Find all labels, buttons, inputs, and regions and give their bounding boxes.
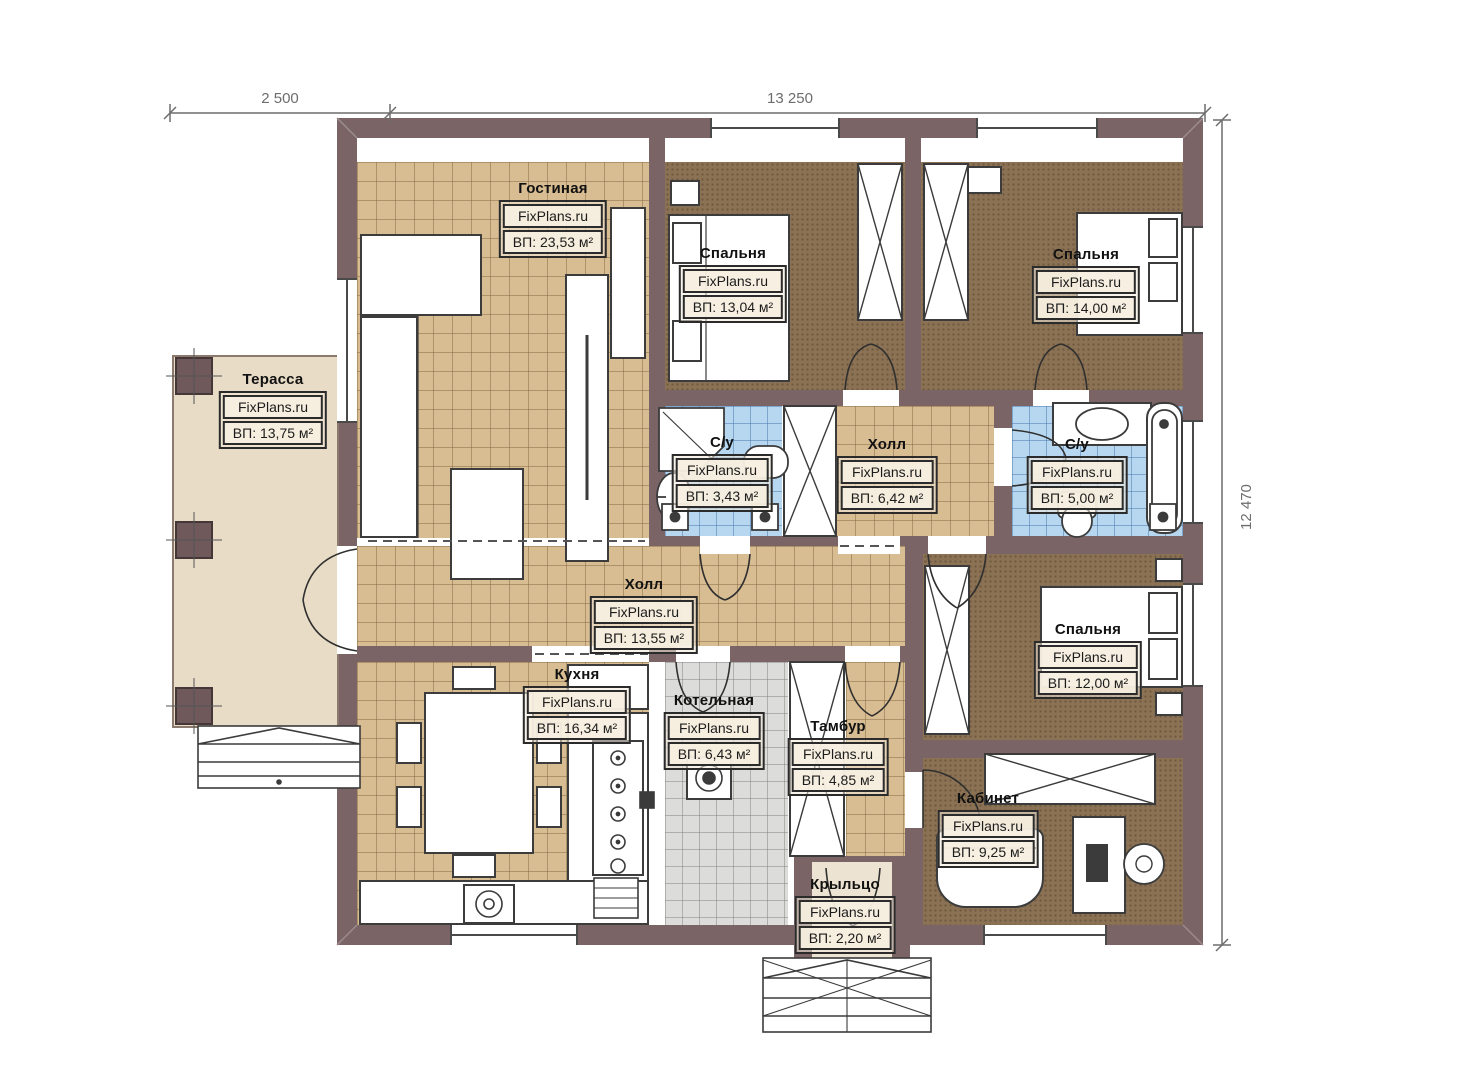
bathtub <box>1146 402 1183 534</box>
sofa <box>360 234 482 316</box>
room-area: ВП: 23,53 м² <box>503 230 603 254</box>
room-porch-label: Крыльцо FixPlans.ru ВП: 2,20 м² <box>795 876 896 954</box>
door-opening <box>905 772 923 828</box>
window <box>976 118 1098 138</box>
wall <box>357 646 532 662</box>
room-name: Кухня <box>555 666 600 684</box>
window <box>710 118 840 138</box>
stove <box>592 740 644 876</box>
room-bedroom1-label: Спальня FixPlans.ru ВП: 13,04 м² <box>679 245 787 323</box>
room-name: Спальня <box>1053 246 1119 264</box>
room-area: ВП: 14,00 м² <box>1036 296 1136 320</box>
watermark: FixPlans.ru <box>223 395 323 419</box>
watermark: FixPlans.ru <box>1038 645 1138 669</box>
room-name: С/у <box>1065 436 1089 454</box>
room-vestibule-label: Тамбур FixPlans.ru ВП: 4,85 м² <box>788 718 889 796</box>
watermark: FixPlans.ru <box>683 269 783 293</box>
watermark: FixPlans.ru <box>942 814 1035 838</box>
dresser <box>938 166 1002 194</box>
shelf <box>610 207 646 359</box>
room-boiler-label: Котельная FixPlans.ru ВП: 6,43 м² <box>664 692 765 770</box>
pillow <box>1148 262 1178 302</box>
room-office-label: Кабинет FixPlans.ru ВП: 9,25 м² <box>938 790 1039 868</box>
room-area: ВП: 13,04 м² <box>683 295 783 319</box>
room-name: Кабинет <box>957 790 1019 808</box>
room-hall-main-label: Холл FixPlans.ru ВП: 13,55 м² <box>590 576 698 654</box>
room-name: Котельная <box>674 692 754 710</box>
porch-steps <box>763 958 931 1032</box>
window <box>983 925 1107 945</box>
watermark: FixPlans.ru <box>1031 460 1124 484</box>
room-area: ВП: 5,00 м² <box>1031 486 1124 510</box>
room-name: Спальня <box>700 245 766 263</box>
watermark: FixPlans.ru <box>594 600 694 624</box>
watermark: FixPlans.ru <box>676 458 769 482</box>
terrace-steps <box>198 726 360 788</box>
room-area: ВП: 16,34 м² <box>527 716 627 740</box>
door-opening <box>928 536 986 554</box>
nightstand <box>670 180 700 206</box>
watermark: FixPlans.ru <box>799 900 892 924</box>
desk <box>1072 816 1126 914</box>
dimension-terrace-width: 2 500 <box>261 90 299 107</box>
wall <box>923 740 1183 758</box>
room-bath1-label: С/у FixPlans.ru ВП: 3,43 м² <box>672 434 773 512</box>
watermark: FixPlans.ru <box>668 716 761 740</box>
watermark: FixPlans.ru <box>792 742 885 766</box>
room-name: Холл <box>625 576 663 594</box>
room-name: С/у <box>710 434 734 452</box>
terrace-door-opening <box>337 546 357 654</box>
pillow <box>1148 592 1178 634</box>
pillow <box>1148 218 1178 258</box>
room-bedroom3-label: Спальня FixPlans.ru ВП: 12,00 м² <box>1034 621 1142 699</box>
tv-console <box>565 274 609 562</box>
room-area: ВП: 6,42 м² <box>841 486 934 510</box>
room-area: ВП: 3,43 м² <box>676 484 769 508</box>
window <box>1183 583 1203 687</box>
room-area: ВП: 12,00 м² <box>1038 671 1138 695</box>
window <box>1183 226 1203 334</box>
room-bath2-label: С/у FixPlans.ru ВП: 5,00 м² <box>1027 436 1128 514</box>
room-terrace-label: Терасса FixPlans.ru ВП: 13,75 м² <box>219 371 327 449</box>
room-area: ВП: 4,85 м² <box>792 768 885 792</box>
chair <box>452 666 496 690</box>
room-hall-small-label: Холл FixPlans.ru ВП: 6,42 м² <box>837 436 938 514</box>
wall <box>905 138 921 390</box>
room-name: Спальня <box>1055 621 1121 639</box>
watermark: FixPlans.ru <box>1036 270 1136 294</box>
nightstand <box>1155 558 1183 582</box>
coffee-table <box>450 468 524 580</box>
dimension-house-width: 13 250 <box>767 90 813 107</box>
nightstand <box>1155 692 1183 716</box>
window <box>1183 420 1203 524</box>
watermark: FixPlans.ru <box>841 460 934 484</box>
pillow <box>1148 638 1178 680</box>
dimension-house-depth: 12 470 <box>1238 484 1255 530</box>
room-kitchen-label: Кухня FixPlans.ru ВП: 16,34 м² <box>523 666 631 744</box>
chair <box>536 786 562 828</box>
room-name: Терасса <box>243 371 304 389</box>
sofa <box>360 316 418 538</box>
floor-plan: 2 500 13 250 12 470 <box>0 0 1473 1080</box>
watermark: FixPlans.ru <box>527 690 627 714</box>
wall <box>649 138 665 540</box>
door-opening <box>700 536 750 554</box>
door-opening <box>845 646 900 662</box>
pillow <box>672 320 702 362</box>
chair <box>452 854 496 878</box>
room-area: ВП: 6,43 м² <box>668 742 761 766</box>
window <box>450 925 578 945</box>
chair <box>396 786 422 828</box>
watermark: FixPlans.ru <box>503 204 603 228</box>
washer <box>463 884 515 924</box>
window <box>337 278 357 423</box>
room-area: ВП: 13,75 м² <box>223 421 323 445</box>
room-name: Крыльцо <box>810 876 880 894</box>
room-area: ВП: 9,25 м² <box>942 840 1035 864</box>
room-name: Холл <box>868 436 906 454</box>
door-opening <box>843 390 899 406</box>
room-area: ВП: 2,20 м² <box>799 926 892 950</box>
opening <box>838 536 900 554</box>
room-living-label: Гостиная FixPlans.ru ВП: 23,53 м² <box>499 180 607 258</box>
room-name: Гостиная <box>518 180 587 198</box>
room-bedroom2-label: Спальня FixPlans.ru ВП: 14,00 м² <box>1032 246 1140 324</box>
door-opening <box>994 428 1012 486</box>
room-area: ВП: 13,55 м² <box>594 626 694 650</box>
chair <box>396 722 422 764</box>
room-name: Тамбур <box>810 718 866 736</box>
dining-table <box>424 692 534 854</box>
